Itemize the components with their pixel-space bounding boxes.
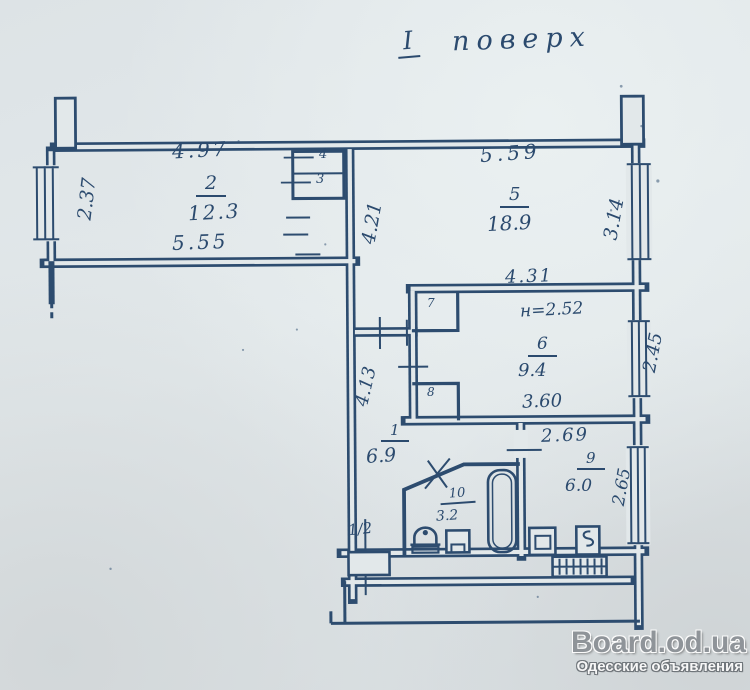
room1-number: 1	[381, 421, 409, 442]
room9-area: 6.0	[565, 476, 592, 496]
closet-box-7-8	[412, 291, 459, 420]
floor-number-roman: I	[396, 25, 421, 59]
room10-area: 3.2	[435, 507, 458, 525]
half-mark-label: 1/2	[347, 519, 373, 539]
window-icon	[33, 161, 655, 549]
room1-area: 6.9	[365, 444, 397, 468]
stove-icon	[576, 526, 599, 554]
floor-title: поверх	[452, 22, 593, 58]
room2-area: 12.3	[187, 199, 241, 226]
kitchen-sink-icon	[529, 528, 555, 555]
room6-number: 6	[528, 334, 557, 357]
room8-number: 8	[427, 385, 435, 399]
room6-area: 9.4	[518, 360, 547, 381]
dim-room9-top: 2.69	[541, 424, 590, 447]
room2-number: 2	[196, 172, 226, 197]
room7-number: 7	[427, 296, 435, 310]
dim-room5-top: 5.59	[479, 139, 541, 167]
room4-number: 4	[319, 147, 327, 162]
radiator-grate-icon	[552, 556, 606, 576]
watermark-tagline: Одесские объявления	[576, 658, 743, 675]
bathtub-icon	[488, 470, 517, 552]
room5-area: 18.9	[486, 210, 532, 236]
dim-room6-top: 4.31	[505, 265, 554, 288]
dim-room2-top: 4.97	[171, 137, 229, 164]
watermark-site: Board.od.ua	[571, 626, 746, 660]
room6-height-note: н=2.52	[520, 298, 584, 321]
dim-room2-bottom: 5.55	[172, 229, 229, 255]
room5-number: 5	[500, 184, 529, 208]
dim-room6-bottom: 3.60	[522, 390, 563, 412]
room9-number: 9	[577, 449, 605, 470]
washbasin-icon	[446, 530, 469, 552]
floor-plan-drawing	[0, 0, 750, 690]
scanned-floor-plan: I поверх 4.97 2.37 2 12.3 5.55 4 3 5.59 …	[0, 0, 750, 690]
room10-number: 10	[439, 485, 475, 505]
room3-number: 3	[316, 172, 324, 187]
closet-box-3-4	[281, 151, 345, 254]
